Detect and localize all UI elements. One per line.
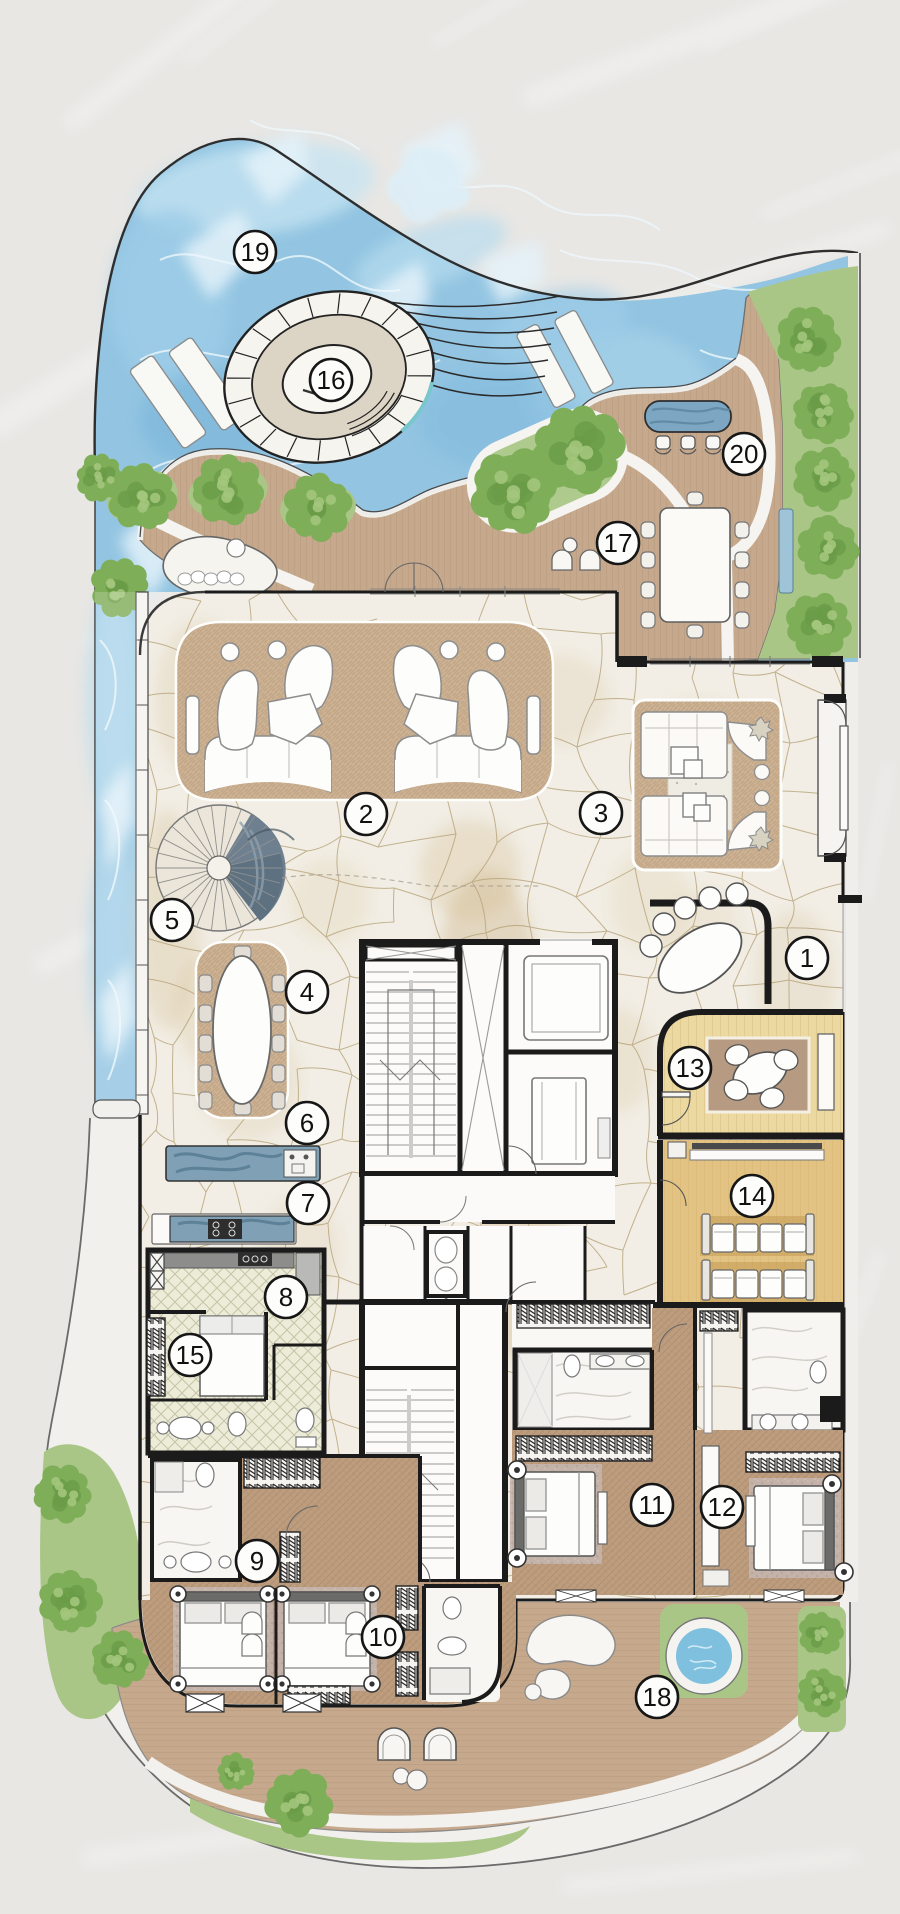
svg-text:15: 15 (176, 1340, 205, 1370)
svg-text:18: 18 (643, 1682, 672, 1712)
svg-text:9: 9 (250, 1546, 264, 1576)
svg-text:7: 7 (301, 1188, 315, 1218)
svg-text:1: 1 (800, 943, 814, 973)
svg-text:14: 14 (738, 1181, 767, 1211)
svg-text:13: 13 (676, 1053, 705, 1083)
svg-text:5: 5 (165, 905, 179, 935)
svg-text:2: 2 (359, 799, 373, 829)
svg-text:16: 16 (317, 365, 346, 395)
svg-text:8: 8 (279, 1282, 293, 1312)
svg-text:3: 3 (594, 798, 608, 828)
svg-text:6: 6 (300, 1108, 314, 1138)
svg-text:17: 17 (604, 528, 633, 558)
svg-text:19: 19 (241, 237, 270, 267)
svg-text:12: 12 (708, 1492, 737, 1522)
svg-text:10: 10 (369, 1622, 398, 1652)
svg-text:11: 11 (639, 1490, 666, 1520)
svg-text:20: 20 (730, 439, 759, 469)
svg-text:4: 4 (300, 977, 314, 1007)
